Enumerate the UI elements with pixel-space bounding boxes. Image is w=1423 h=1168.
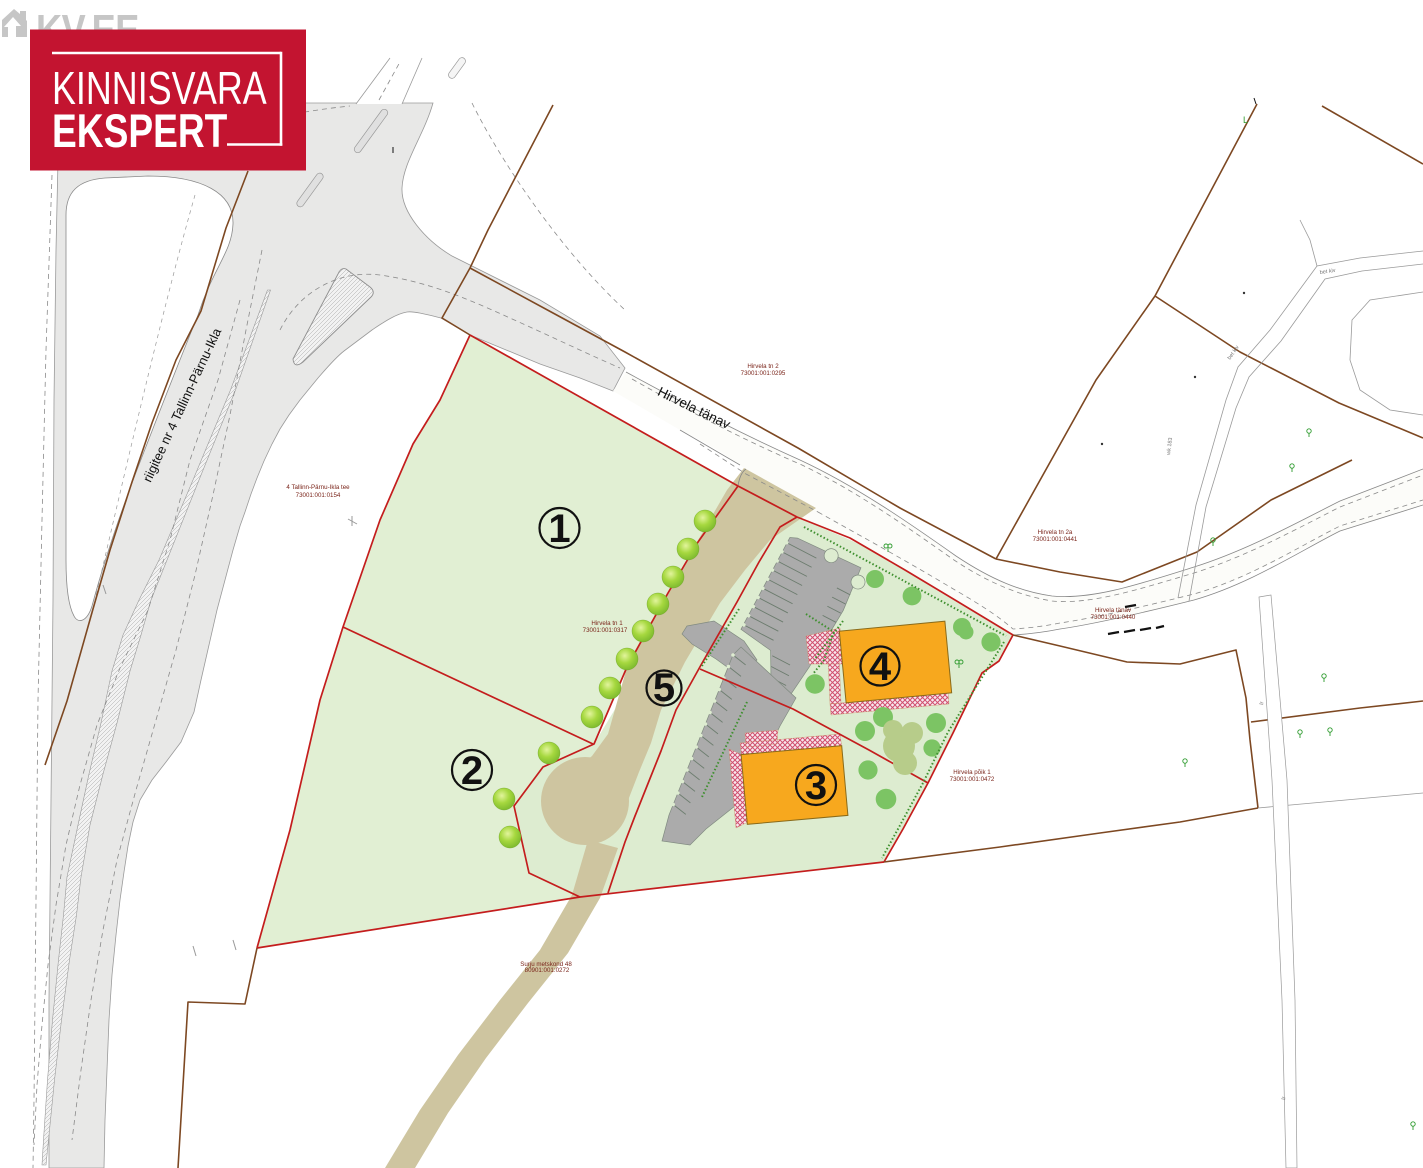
svg-text:73001:001:0154: 73001:001:0154 — [296, 492, 341, 499]
svg-text:1: 1 — [548, 507, 570, 551]
svg-text:Hirvela tn 2a: Hirvela tn 2a — [1038, 529, 1073, 536]
svg-text:5: 5 — [653, 666, 675, 710]
svg-text:80901:001:0272: 80901:001:0272 — [525, 967, 570, 974]
svg-text:Hirvela tn 1: Hirvela tn 1 — [591, 620, 623, 627]
svg-text:4: 4 — [869, 645, 892, 689]
svg-text:EKSPERT: EKSPERT — [52, 105, 227, 157]
svg-text:73001:001:0472: 73001:001:0472 — [950, 776, 995, 783]
svg-text:73001:001:0440: 73001:001:0440 — [1091, 614, 1136, 621]
svg-text:Hirvela põik 1: Hirvela põik 1 — [953, 769, 991, 776]
svg-text:Hirvela tänav: Hirvela tänav — [1095, 607, 1132, 614]
svg-text:4 Tallinn-Pärnu-Ikla tee: 4 Tallinn-Pärnu-Ikla tee — [286, 484, 350, 491]
svg-text:3: 3 — [805, 764, 827, 808]
svg-text:73001:001:0441: 73001:001:0441 — [1033, 536, 1078, 543]
svg-text:L: L — [1243, 115, 1248, 125]
svg-text:Hirvela tn 2: Hirvela tn 2 — [747, 363, 779, 370]
svg-text:73001:001:0317: 73001:001:0317 — [583, 627, 628, 634]
svg-text:73001:001:0295: 73001:001:0295 — [741, 370, 786, 377]
svg-text:2: 2 — [461, 749, 483, 793]
